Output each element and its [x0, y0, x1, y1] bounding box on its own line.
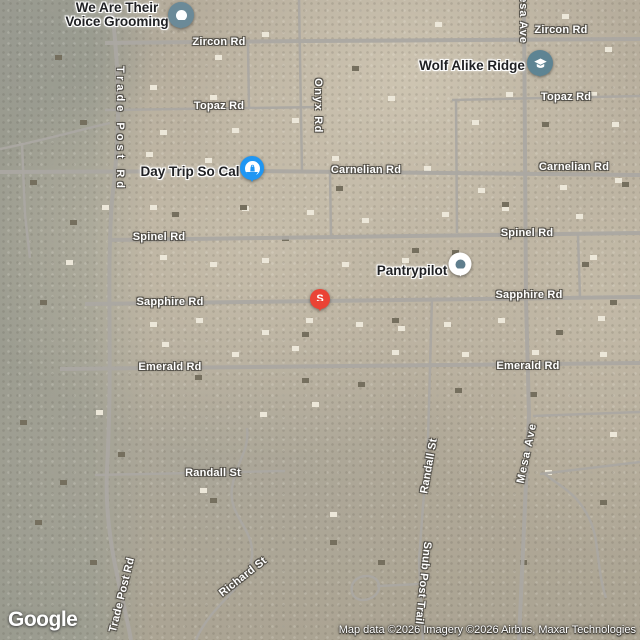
road-line-east-spur — [533, 412, 640, 416]
school-pin-balloon — [527, 50, 553, 76]
road-line-southeast-curve — [545, 474, 606, 598]
road-line-mesa — [519, 0, 529, 640]
road-label-zircon-west: Zircon Rd — [192, 36, 245, 48]
road-line-zircon — [105, 39, 640, 43]
dot-pin-balloon — [449, 253, 472, 276]
place-label-grooming-line1: We Are Their — [65, 1, 168, 15]
road-label-spinel-east: Spinel Rd — [501, 227, 554, 239]
place-label-grooming[interactable]: We Are Their Voice Grooming — [65, 1, 168, 29]
place-pin-grooming[interactable] — [168, 2, 194, 28]
google-logo[interactable]: Google — [8, 608, 77, 632]
map-attribution: Map data ©2026 Imagery ©2026 Airbus, Max… — [339, 624, 636, 636]
road-line-onyx — [299, 0, 302, 172]
road-line-richard — [196, 428, 252, 640]
road-label-emerald-east: Emerald Rd — [496, 360, 559, 372]
road-line-southeast-spur — [540, 462, 640, 474]
road-label-mesa-north: Mesa Ave — [517, 0, 529, 44]
road-label-topaz-east: Topaz Rd — [541, 91, 591, 103]
road-label-spinel-west: Spinel Rd — [133, 231, 186, 243]
red-pin-balloon: S — [310, 289, 330, 309]
road-label-sapphire-east: Sapphire Rd — [496, 289, 563, 301]
road-line-culdesac — [352, 576, 420, 600]
road-label-carnelian-east: Carnelian Rd — [539, 161, 609, 173]
grooming-pin-balloon — [168, 2, 194, 28]
shopping-pin-balloon — [240, 156, 264, 180]
pin-tail — [455, 269, 465, 282]
road-label-onyx: Onyx Rd — [312, 78, 324, 134]
circle-dot-icon — [176, 10, 187, 21]
road-label-zircon-east: Zircon Rd — [534, 24, 587, 36]
road-label-carnelian-mid: Carnelian Rd — [331, 164, 401, 176]
pin-tail — [246, 172, 258, 188]
map-canvas[interactable]: Zircon Rd Zircon Rd Topaz Rd Topaz Rd Ca… — [0, 0, 640, 640]
pin-tail — [534, 68, 546, 83]
place-label-pantrypilot[interactable]: Pantrypilot — [377, 264, 448, 278]
road-label-trade-post-north: Trade Post Rd — [114, 66, 126, 192]
place-label-wolf-ridge[interactable]: Wolf Alike Ridge — [419, 59, 525, 73]
road-label-emerald-west: Emerald Rd — [138, 361, 201, 373]
road-line-connector-4 — [578, 235, 580, 298]
road-line-spinel — [108, 233, 640, 240]
road-line-connector-3 — [456, 99, 457, 233]
search-result-pin[interactable]: S — [310, 289, 330, 309]
road-label-randall-h: Randall St — [185, 467, 241, 479]
road-line-northwest-diag — [0, 123, 110, 149]
circle-dot-icon — [455, 259, 465, 269]
road-line-west-spur — [22, 143, 30, 258]
road-line-connector-2 — [330, 172, 331, 236]
place-pin-wolf-ridge[interactable] — [527, 50, 553, 76]
pin-tail — [175, 20, 187, 35]
place-label-grooming-line2: Voice Grooming — [65, 15, 168, 29]
road-label-topaz-west: Topaz Rd — [194, 100, 244, 112]
place-pin-pantrypilot[interactable] — [449, 253, 472, 276]
road-line-connector-1 — [248, 43, 249, 108]
road-label-sapphire-west: Sapphire Rd — [137, 296, 204, 308]
place-pin-day-trip[interactable] — [240, 156, 264, 180]
place-label-day-trip[interactable]: Day Trip So Cal — [140, 165, 239, 179]
pin-tail — [314, 301, 326, 317]
